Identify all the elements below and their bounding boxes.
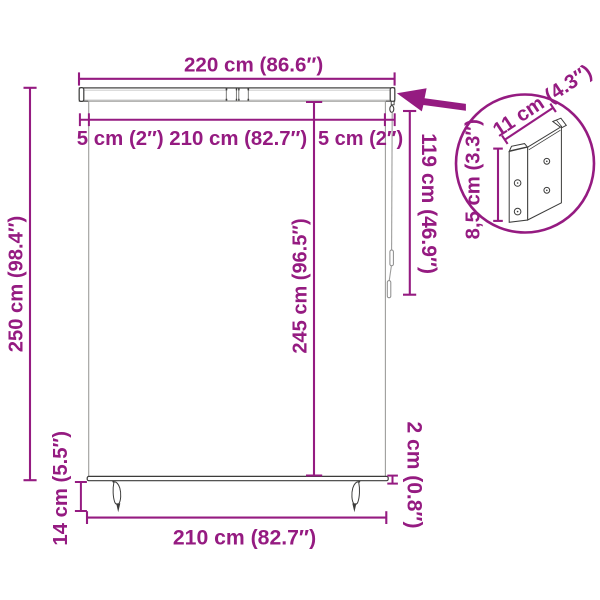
svg-text:5 cm (2″) 210 cm (82.7″): 5 cm (2″) 210 cm (82.7″) [77,128,307,150]
svg-text:14 cm (5.5″): 14 cm (5.5″) [50,431,72,546]
svg-text:245 cm (96.5″): 245 cm (96.5″) [290,218,312,353]
svg-text:8,5 cm (3.3″): 8,5 cm (3.3″) [463,119,485,239]
svg-text:5 cm (2″): 5 cm (2″) [318,128,403,150]
svg-text:220 cm (86.6″): 220 cm (86.6″) [184,53,323,76]
svg-text:2 cm (0.8″): 2 cm (0.8″) [402,422,425,529]
svg-text:119 cm (46.9″): 119 cm (46.9″) [417,133,440,274]
svg-text:210 cm (82.7″): 210 cm (82.7″) [173,526,316,549]
svg-text:250 cm (98.4″): 250 cm (98.4″) [5,216,27,352]
